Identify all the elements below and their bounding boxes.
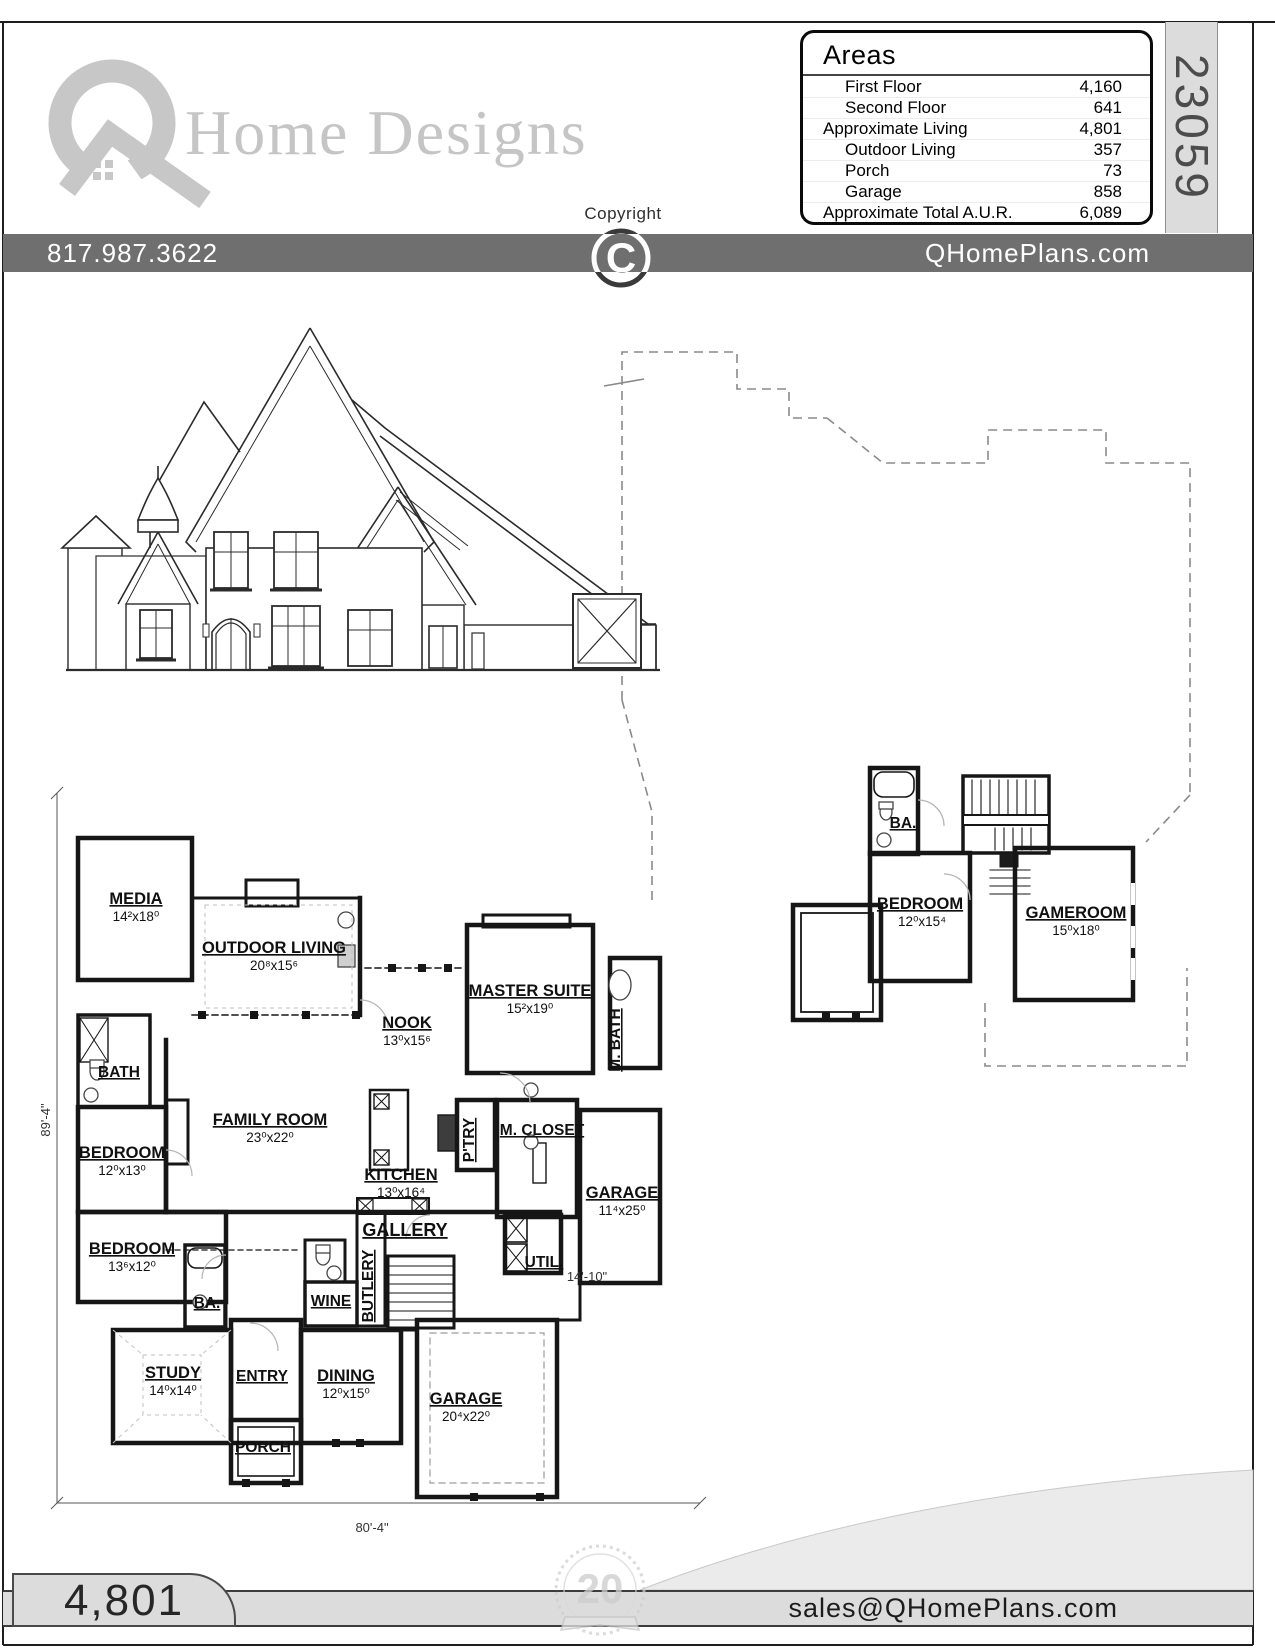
annotation-label: PORCH xyxy=(235,1439,291,1456)
area-label: First Floor xyxy=(803,77,922,97)
area-value: 641 xyxy=(946,98,1150,118)
plan-sheet: { "page": { "plan_number": "23059" }, "b… xyxy=(0,0,1275,1650)
room-label: GARAGE xyxy=(430,1390,502,1408)
area-value: 73 xyxy=(889,161,1150,181)
room-label: DINING xyxy=(317,1367,375,1385)
room-size: 13⁶x12⁰ xyxy=(108,1259,156,1274)
front-elevation-drawing xyxy=(62,328,660,670)
annotation-label: BATH xyxy=(98,1064,140,1081)
area-label: Approximate Total A.U.R. xyxy=(803,203,1013,223)
annotation-label: UTIL. xyxy=(525,1254,564,1271)
area-value: 4,160 xyxy=(922,77,1151,97)
annotation-label: M. BATH xyxy=(607,1008,624,1071)
area-row: Outdoor Living 357 xyxy=(803,139,1150,160)
area-label: Garage xyxy=(803,182,902,202)
annotation-label: ENTRY xyxy=(236,1368,289,1385)
phone-number[interactable]: 817.987.3622 xyxy=(3,238,218,269)
room-label: KITCHEN xyxy=(364,1166,437,1184)
copyright-label: Copyright xyxy=(560,204,686,224)
roof-outline-dashed xyxy=(604,352,1190,1066)
annotation-label: P'TRY xyxy=(461,1117,478,1162)
area-label: Porch xyxy=(803,161,889,181)
room-size: 12⁰x15⁰ xyxy=(322,1386,370,1401)
annotation-label: BA. xyxy=(194,1295,221,1312)
room-size: 15²x19⁰ xyxy=(507,1001,554,1016)
areas-rows: First Floor 4,160 Second Floor 641 Appro… xyxy=(803,76,1150,223)
brand-wordmark: Home Designs xyxy=(185,96,588,170)
area-row: Approximate Living 4,801 xyxy=(803,118,1150,139)
annotation-label: WINE xyxy=(311,1293,351,1310)
room-label: FAMILY ROOM xyxy=(213,1111,328,1129)
room-size: 20⁸x15⁶ xyxy=(250,958,298,973)
room-label: BEDROOM xyxy=(79,1144,165,1162)
email-link[interactable]: sales@QHomePlans.com xyxy=(788,1592,1118,1625)
areas-panel: Areas First Floor 4,160 Second Floor 641… xyxy=(800,30,1153,225)
room-size: 12⁰x13⁰ xyxy=(98,1163,146,1178)
room-size: 11⁴x25⁰ xyxy=(599,1203,646,1218)
area-row: Approximate Total A.U.R. 6,089 xyxy=(803,202,1150,223)
annotation-label: GALLERY xyxy=(362,1220,447,1240)
room-label: MASTER SUITE xyxy=(469,982,592,1000)
dimension-garage: 14'-10" xyxy=(567,1269,608,1284)
room-label: OUTDOOR LIVING xyxy=(202,939,346,957)
area-value: 4,801 xyxy=(968,119,1150,139)
area-value: 858 xyxy=(902,182,1150,202)
room-size: 20⁴x22⁰ xyxy=(442,1409,490,1424)
dimension-front: 80'-4" xyxy=(355,1520,389,1535)
plan-number-strip: 23059 xyxy=(1165,22,1218,233)
room-label: NOOK xyxy=(382,1014,432,1032)
room-label: BEDROOM xyxy=(877,895,963,913)
area-label: Second Floor xyxy=(803,98,946,118)
room-size: 14⁰x14⁰ xyxy=(149,1383,197,1398)
annotation-label: BA. xyxy=(890,815,917,832)
area-row: First Floor 4,160 xyxy=(803,76,1150,97)
annotation-label: M. CLOSET xyxy=(500,1122,585,1139)
brand-logo: Home Designs xyxy=(45,48,645,213)
area-value: 6,089 xyxy=(1013,203,1150,223)
room-label: STUDY xyxy=(145,1364,201,1382)
copyright-symbol-icon: C C xyxy=(586,222,656,292)
area-label: Approximate Living xyxy=(803,119,968,139)
swoosh-graphic xyxy=(640,1470,1253,1590)
second-floor-plan xyxy=(793,768,1133,1020)
room-size: 14²x18⁰ xyxy=(113,909,160,924)
room-size: 13⁰x16⁴ xyxy=(377,1185,425,1200)
room-size: 12⁰x15⁴ xyxy=(898,914,946,929)
area-row: Porch 73 xyxy=(803,160,1150,181)
area-row: Second Floor 641 xyxy=(803,97,1150,118)
room-label: GAMEROOM xyxy=(1026,904,1127,922)
area-value: 357 xyxy=(956,140,1150,160)
website-link[interactable]: QHomePlans.com xyxy=(925,238,1253,269)
plan-number: 23059 xyxy=(1165,54,1219,202)
room-size: 13⁰x15⁶ xyxy=(383,1033,431,1048)
room-label: GARAGE xyxy=(586,1184,658,1202)
room-size: 23⁰x22⁰ xyxy=(246,1130,294,1145)
living-area-tab: 4,801 xyxy=(12,1573,236,1627)
dimension-side: 89'-4" xyxy=(38,1103,53,1137)
room-label: MEDIA xyxy=(109,890,162,908)
room-size: 15⁰x18⁰ xyxy=(1052,923,1100,938)
area-label: Outdoor Living xyxy=(803,140,956,160)
area-row: Garage 858 xyxy=(803,181,1150,202)
room-label: BEDROOM xyxy=(89,1240,175,1258)
annotation-label: BUTLERY xyxy=(360,1249,377,1322)
areas-title: Areas xyxy=(803,33,1150,74)
